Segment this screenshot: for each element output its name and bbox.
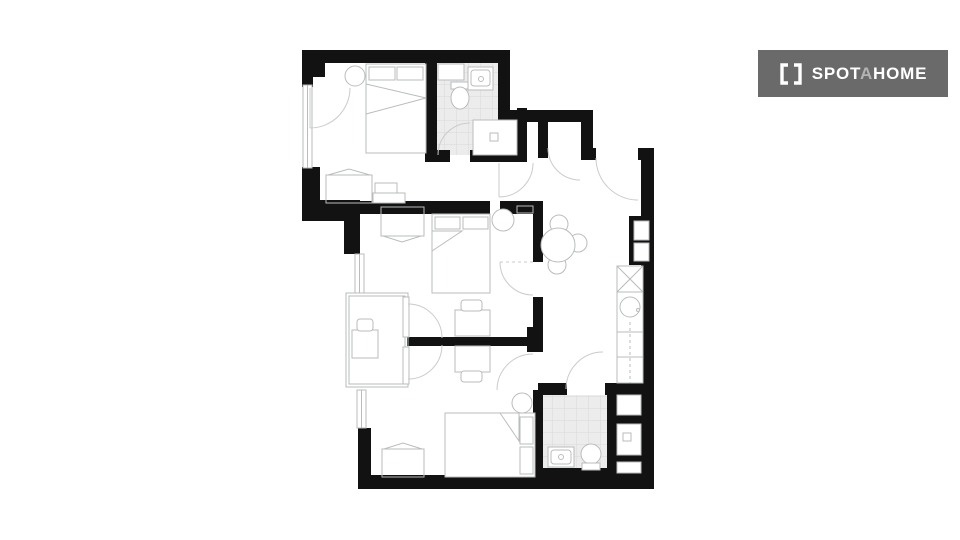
balcony-door-arc-top bbox=[408, 304, 442, 338]
chair bbox=[461, 371, 482, 382]
balcony-french-window-bottom bbox=[403, 347, 409, 384]
living-dining bbox=[541, 215, 587, 274]
hall-door-arc bbox=[499, 163, 533, 197]
round-side-table bbox=[345, 66, 365, 86]
balcony bbox=[346, 293, 409, 387]
wardrobe bbox=[382, 443, 424, 477]
pillow bbox=[463, 217, 488, 229]
toilet bbox=[451, 82, 469, 109]
cistern-box bbox=[438, 64, 464, 80]
pillow bbox=[520, 417, 533, 444]
washbasin bbox=[468, 67, 493, 90]
shower-tray bbox=[473, 120, 517, 155]
desk bbox=[455, 346, 490, 372]
storage-niche bbox=[617, 395, 641, 415]
balcony-french-window-top bbox=[403, 297, 409, 337]
pillow bbox=[397, 67, 423, 80]
desk bbox=[455, 310, 490, 336]
balcony-table bbox=[352, 330, 378, 358]
bedroom-2-door-arc bbox=[500, 262, 533, 295]
logo-part1: SPOT bbox=[812, 64, 860, 83]
page: SPOTAHOME bbox=[0, 0, 960, 540]
bedroom-1-window bbox=[303, 85, 350, 168]
logo-part2: HOME bbox=[873, 64, 927, 83]
chair bbox=[461, 300, 482, 311]
balcony-door-arc-bottom bbox=[408, 345, 442, 379]
wardrobe bbox=[326, 169, 372, 203]
entrance-door-arc bbox=[596, 158, 638, 200]
logo-wordmark: SPOTAHOME bbox=[812, 65, 928, 82]
cabinet bbox=[617, 462, 641, 473]
logo-accent-letter: A bbox=[860, 64, 873, 83]
round-side-table bbox=[512, 393, 532, 413]
toilet bbox=[581, 444, 601, 470]
bedroom-3-window bbox=[357, 390, 366, 428]
dresser-top bbox=[375, 183, 397, 193]
kitchen bbox=[617, 266, 643, 383]
closet-door-arc bbox=[548, 148, 580, 180]
balcony-chair bbox=[357, 319, 373, 331]
bedroom-1 bbox=[326, 64, 426, 203]
brackets-icon bbox=[779, 62, 803, 86]
washbasin bbox=[492, 209, 514, 231]
pillow bbox=[369, 67, 395, 80]
spotahome-logo: SPOTAHOME bbox=[758, 50, 948, 97]
washbasin bbox=[548, 447, 574, 467]
bedroom-3-door-arc bbox=[497, 354, 533, 390]
bedroom-2-window bbox=[355, 254, 364, 293]
dresser bbox=[373, 193, 405, 203]
round-dining-table bbox=[541, 228, 575, 262]
pillow bbox=[435, 217, 460, 229]
pillow bbox=[520, 447, 533, 474]
shower-tray bbox=[617, 424, 641, 455]
bathroom-2-door-arc bbox=[566, 352, 603, 389]
